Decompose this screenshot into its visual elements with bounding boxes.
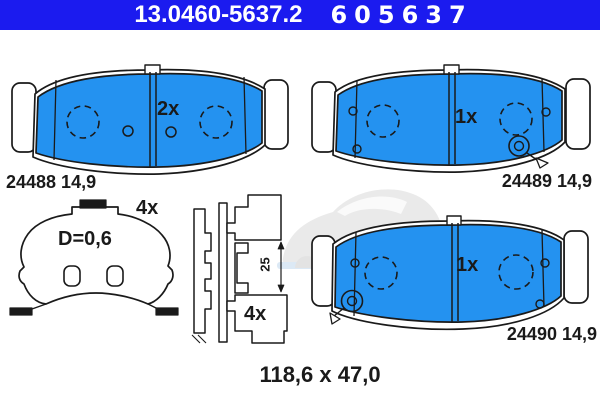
pad-bottom-right-qty: 1x <box>456 255 478 275</box>
pad-top-left-label: 24488 14,9 <box>6 173 96 191</box>
pad-bottom-right-label: 24490 14,9 <box>507 325 597 343</box>
clip-qty: 4x <box>244 304 266 324</box>
shim-bottom-edges <box>32 304 158 309</box>
clip-height-dimension: 25 <box>259 252 272 278</box>
pad-ear-right <box>566 79 590 149</box>
shim-top-tab <box>80 200 106 208</box>
clip-top-arm <box>227 195 281 240</box>
clip-rail-hatch <box>192 335 206 343</box>
brake-pad-set-diagram: 13.0460-5637.2 605637 <box>0 0 600 400</box>
pad-top-left-qty: 2x <box>157 99 179 119</box>
pad-top-right-label: 24489 14,9 <box>502 172 592 190</box>
pad-friction-surface <box>36 74 262 167</box>
shim-foot-left <box>10 308 32 315</box>
pad-ear-right <box>264 80 288 149</box>
clip-spring-section <box>235 243 248 293</box>
shim-thickness-label: D=0,6 <box>58 229 112 249</box>
shim-foot-right <box>156 308 178 315</box>
pad-friction-surface <box>335 225 561 322</box>
shim-hole-right <box>107 266 123 286</box>
shim-qty: 4x <box>136 198 158 218</box>
pad-ear-right <box>564 231 588 303</box>
pad-ear-left <box>12 83 36 152</box>
pad-dimensions-label: 118,6 x 47,0 <box>195 364 445 386</box>
shim-outline <box>19 207 173 304</box>
pad-slot-notch <box>145 65 160 74</box>
header-bar: 13.0460-5637.2 605637 <box>0 0 600 30</box>
catalog-number: 13.0460-5637.2 <box>134 0 302 30</box>
pad-top-right-qty: 1x <box>455 107 477 127</box>
pad-drawing-top-right <box>310 62 594 180</box>
shim-hole-left <box>64 266 80 286</box>
wva-number: 605637 <box>330 0 472 30</box>
pad-ear-left <box>312 82 336 152</box>
pad-slot-notch <box>447 216 461 225</box>
dimension-arrow-25 <box>278 242 284 292</box>
clip-backplate-rail <box>194 209 211 333</box>
pad-slot-notch <box>444 65 459 74</box>
clip-vertical-rail <box>219 203 227 342</box>
pad-drawing-top-left <box>8 62 294 180</box>
